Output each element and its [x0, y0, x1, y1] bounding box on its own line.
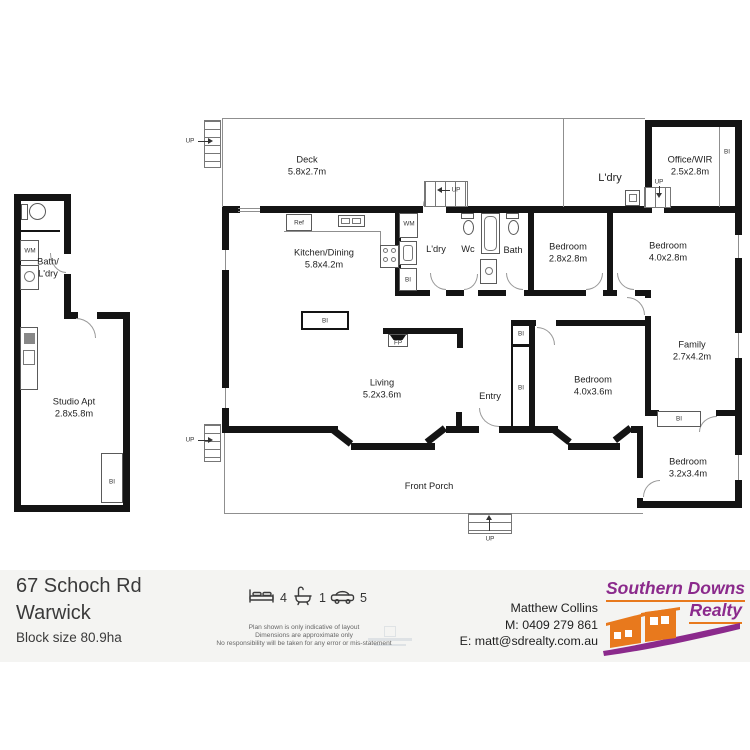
- thin-segment: [738, 235, 739, 258]
- wall-segment: [222, 206, 229, 250]
- brand-houses-icon: [600, 606, 746, 658]
- plan-graphic: Bedroom: [574, 374, 612, 386]
- wall-segment: [645, 120, 742, 127]
- plan-graphic: [614, 632, 621, 639]
- up-label: UP: [186, 138, 195, 145]
- toilet: [508, 220, 519, 235]
- plan-graphic: [295, 587, 311, 604]
- plan-graphic: Bedroom: [549, 241, 587, 253]
- wall-segment: [222, 270, 229, 388]
- plan-graphic: Front Porch: [405, 481, 454, 493]
- stairs: [424, 181, 468, 207]
- wall-segment: [222, 426, 338, 433]
- bath-icon: [293, 585, 313, 606]
- inner-segment: [341, 218, 350, 224]
- plan-graphic: 4.0x3.6m: [574, 386, 612, 398]
- door-arc: [430, 273, 446, 290]
- door-arc: [627, 297, 645, 315]
- thin-segment: [738, 333, 739, 358]
- wall-segment: [645, 316, 651, 412]
- plan-graphic: Bedroom: [649, 240, 687, 252]
- wall-segment: [425, 425, 447, 445]
- plan-graphic: Bath: [503, 245, 522, 257]
- room-label-bath-ldry: Bath/L'dry: [37, 256, 59, 279]
- plan-graphic: [661, 616, 669, 624]
- plan-graphic: [650, 617, 658, 625]
- fridge-label: Ref: [294, 220, 304, 227]
- wall-segment: [735, 358, 742, 455]
- inner-segment: [391, 248, 396, 253]
- baths-count: 1: [319, 591, 326, 605]
- wall-segment: [446, 426, 479, 433]
- plan-graphic: 2.8x5.8m: [53, 408, 95, 420]
- plan-graphic: [332, 592, 354, 604]
- plan-graphic: [299, 587, 304, 596]
- room-label-bath: Bath: [503, 245, 522, 257]
- inner-segment: [403, 245, 413, 261]
- disclaimer-line2: Dimensions are approximate only: [173, 632, 435, 640]
- plan-graphic: Bedroom: [669, 456, 707, 468]
- wall-segment: [64, 194, 71, 254]
- wall-segment: [645, 290, 651, 298]
- room-label-living: Living5.2x3.6m: [363, 377, 401, 400]
- wall-segment: [351, 443, 435, 450]
- wall-segment: [735, 258, 742, 333]
- plan-graphic: [335, 600, 339, 604]
- plan-graphic: 4.0x2.8m: [649, 252, 687, 264]
- plan-graphic: [253, 593, 261, 596]
- room-label-bed4: Bedroom3.2x3.4m: [669, 456, 707, 479]
- inner-segment: [24, 271, 35, 282]
- plan-graphic: [645, 608, 676, 642]
- plan-graphic: Entry: [479, 391, 501, 403]
- plan-graphic: 5.2x3.6m: [363, 389, 401, 401]
- inner-segment: [383, 248, 388, 253]
- plan-graphic: [625, 630, 632, 637]
- plan-graphic: L'dry: [426, 244, 446, 256]
- plan-graphic: [263, 593, 271, 596]
- thin-segment: [222, 118, 223, 207]
- brand-name-line1: Southern Downs: [606, 578, 745, 602]
- inner-segment: [352, 218, 361, 224]
- wall-segment: [456, 412, 462, 426]
- plan-graphic: Wc: [461, 244, 474, 256]
- up-arrow-icon: [659, 186, 660, 193]
- wall-segment: [511, 320, 513, 428]
- plan-graphic: [250, 596, 273, 600]
- disclaimer-line1: Plan shown is only indicative of layout: [173, 624, 435, 632]
- agent-email: E: matt@sdrealty.com.au: [420, 633, 598, 650]
- up-arrow-icon: [198, 141, 208, 142]
- wall-segment: [664, 206, 742, 213]
- floorplan-page: UP UP UP UP UP Ref WM BI: [0, 0, 750, 750]
- plan-graphic: Bath/: [37, 256, 59, 268]
- up-arrow-icon: [198, 440, 208, 441]
- wall-segment: [568, 443, 620, 450]
- car-icon: [330, 588, 355, 604]
- thin-segment: [738, 455, 739, 480]
- wall-segment: [637, 426, 643, 478]
- plan-graphic: Studio Apt: [53, 396, 95, 408]
- door-arc: [76, 318, 96, 338]
- plan-graphic: Kitchen/Dining: [294, 247, 354, 259]
- bed-icon: [248, 588, 275, 604]
- room-label-porch: Front Porch: [405, 481, 454, 493]
- plan-graphic: 2.8x2.8m: [549, 253, 587, 265]
- fp-label: FP: [394, 340, 402, 347]
- wall-segment: [529, 320, 535, 428]
- wall-segment: [511, 426, 536, 433]
- agent-contact: Matthew Collins M: 0409 279 861 E: matt@…: [420, 600, 598, 650]
- thin-segment: [563, 118, 564, 207]
- room-label-studio: Studio Apt2.8x5.8m: [53, 396, 95, 419]
- wall-segment: [446, 206, 650, 213]
- door-arc: [643, 480, 660, 497]
- bi-label: BI: [518, 385, 524, 392]
- up-arrow-icon: [208, 138, 213, 144]
- wall-segment: [331, 427, 353, 447]
- up-arrow-icon: [656, 193, 662, 198]
- room-label-kitchen: Kitchen/Dining5.8x4.2m: [294, 247, 354, 270]
- door-arc: [506, 273, 523, 290]
- wall-segment: [613, 425, 633, 443]
- plan-graphic: 3.2x3.4m: [669, 468, 707, 480]
- address-line2: Warwick: [16, 602, 91, 625]
- brand-logo: Southern Downs Realty: [600, 578, 746, 660]
- up-label: UP: [186, 437, 195, 444]
- room-label-ldry-top: L'dry: [598, 172, 622, 186]
- thin-segment: [224, 513, 643, 514]
- plan-graphic: [332, 595, 354, 601]
- inner-segment: [391, 257, 396, 262]
- bi-label: BI: [518, 331, 524, 338]
- plan-graphic: [298, 603, 308, 605]
- wall-segment: [21, 230, 60, 232]
- up-label: UP: [655, 179, 664, 186]
- door-arc: [479, 408, 499, 427]
- plan-graphic: [250, 590, 273, 602]
- disclaimer-line3: No responsibility will be taken for any …: [173, 640, 435, 648]
- agent-name: Matthew Collins: [420, 600, 598, 617]
- plan-graphic: Office/WIR: [668, 154, 713, 166]
- wall-segment: [637, 501, 742, 508]
- room-label-deck: Deck5.8x2.7m: [288, 154, 326, 177]
- thin-segment: [380, 231, 381, 245]
- plan-graphic: 2.7x4.2m: [673, 351, 711, 363]
- thin-segment: [225, 388, 226, 408]
- thin-segment: [284, 231, 381, 232]
- room-label-wc: Wc: [461, 244, 474, 256]
- wall-segment: [446, 290, 464, 296]
- plan-graphic: [295, 596, 311, 602]
- wall-segment: [716, 410, 742, 416]
- wm-label: WM: [403, 221, 414, 228]
- room-label-family: Family2.7x4.2m: [673, 339, 711, 362]
- inner-segment: [23, 350, 35, 365]
- cars-count: 5: [360, 591, 367, 605]
- room-label-office: Office/WIR2.5x2.8m: [668, 154, 713, 177]
- door-arc: [537, 327, 555, 345]
- wall-segment: [478, 290, 506, 296]
- block-size: Block size 80.9ha: [16, 630, 122, 645]
- wall-segment: [14, 505, 130, 512]
- wall-segment: [14, 194, 71, 201]
- door-arc: [617, 273, 634, 290]
- wm-label: WM: [24, 248, 35, 255]
- wall-segment: [528, 206, 534, 296]
- up-arrow-icon: [208, 437, 213, 443]
- thin-segment: [238, 211, 260, 212]
- wall-segment: [556, 320, 651, 326]
- plan-graphic: 2.5x2.8m: [668, 166, 713, 178]
- thin-segment: [222, 118, 645, 119]
- up-label: UP: [486, 536, 495, 543]
- bi-label: BI: [676, 416, 682, 423]
- up-arrow-icon: [442, 190, 450, 191]
- wall-segment: [457, 328, 463, 348]
- wall-segment: [607, 206, 613, 296]
- beds-count: 4: [280, 591, 287, 605]
- thin-segment: [238, 208, 260, 209]
- plan-graphic: Family: [673, 339, 711, 351]
- toilet: [463, 220, 474, 235]
- toilet: [506, 213, 519, 219]
- up-label: UP: [452, 187, 461, 194]
- door-arc: [586, 273, 603, 290]
- wall-segment: [511, 344, 531, 347]
- plan-graphic: Living: [363, 377, 401, 389]
- thin-segment: [225, 250, 226, 270]
- inner-segment: [484, 216, 497, 251]
- inner-segment: [629, 194, 637, 202]
- plan-graphic: Deck: [288, 154, 326, 166]
- plan-graphic: L'dry: [37, 268, 59, 280]
- door-arc: [464, 274, 478, 290]
- toilet: [29, 203, 46, 220]
- thin-segment: [719, 127, 720, 207]
- plan-graphic: L'dry: [598, 172, 622, 186]
- stairs: [204, 424, 221, 462]
- agent-mobile: M: 0409 279 861: [420, 617, 598, 634]
- room-label-bed1: Bedroom2.8x2.8m: [549, 241, 587, 264]
- address-line1: 67 Schoch Rd: [16, 575, 142, 598]
- bi-label: BI: [109, 479, 115, 486]
- up-arrow-icon: [489, 520, 490, 531]
- wall-segment: [123, 453, 130, 512]
- room-label-bed3: Bedroom4.0x3.6m: [574, 374, 612, 397]
- toilet: [21, 204, 28, 220]
- disclaimer: Plan shown is only indicative of layout …: [173, 624, 435, 647]
- bi-label: BI: [405, 277, 411, 284]
- wall-segment: [735, 120, 742, 235]
- room-label-bed2: Bedroom4.0x2.8m: [649, 240, 687, 263]
- plan-graphic: 5.8x2.7m: [288, 166, 326, 178]
- plan-graphic: [346, 600, 350, 604]
- fill-segment: [24, 333, 35, 344]
- bi-label: BI: [322, 318, 328, 325]
- wall-segment: [603, 290, 617, 296]
- plan-graphic: 5.8x4.2m: [294, 259, 354, 271]
- stairs: [204, 120, 221, 168]
- inner-segment: [383, 257, 388, 262]
- door-arc: [699, 416, 717, 432]
- wall-segment: [123, 312, 130, 459]
- wall-segment: [524, 290, 586, 296]
- bi-label: BI: [724, 149, 730, 156]
- room-label-entry: Entry: [479, 391, 501, 403]
- toilet: [461, 213, 474, 219]
- room-label-ldry: L'dry: [426, 244, 446, 256]
- thin-segment: [224, 433, 225, 514]
- inner-segment: [485, 267, 493, 275]
